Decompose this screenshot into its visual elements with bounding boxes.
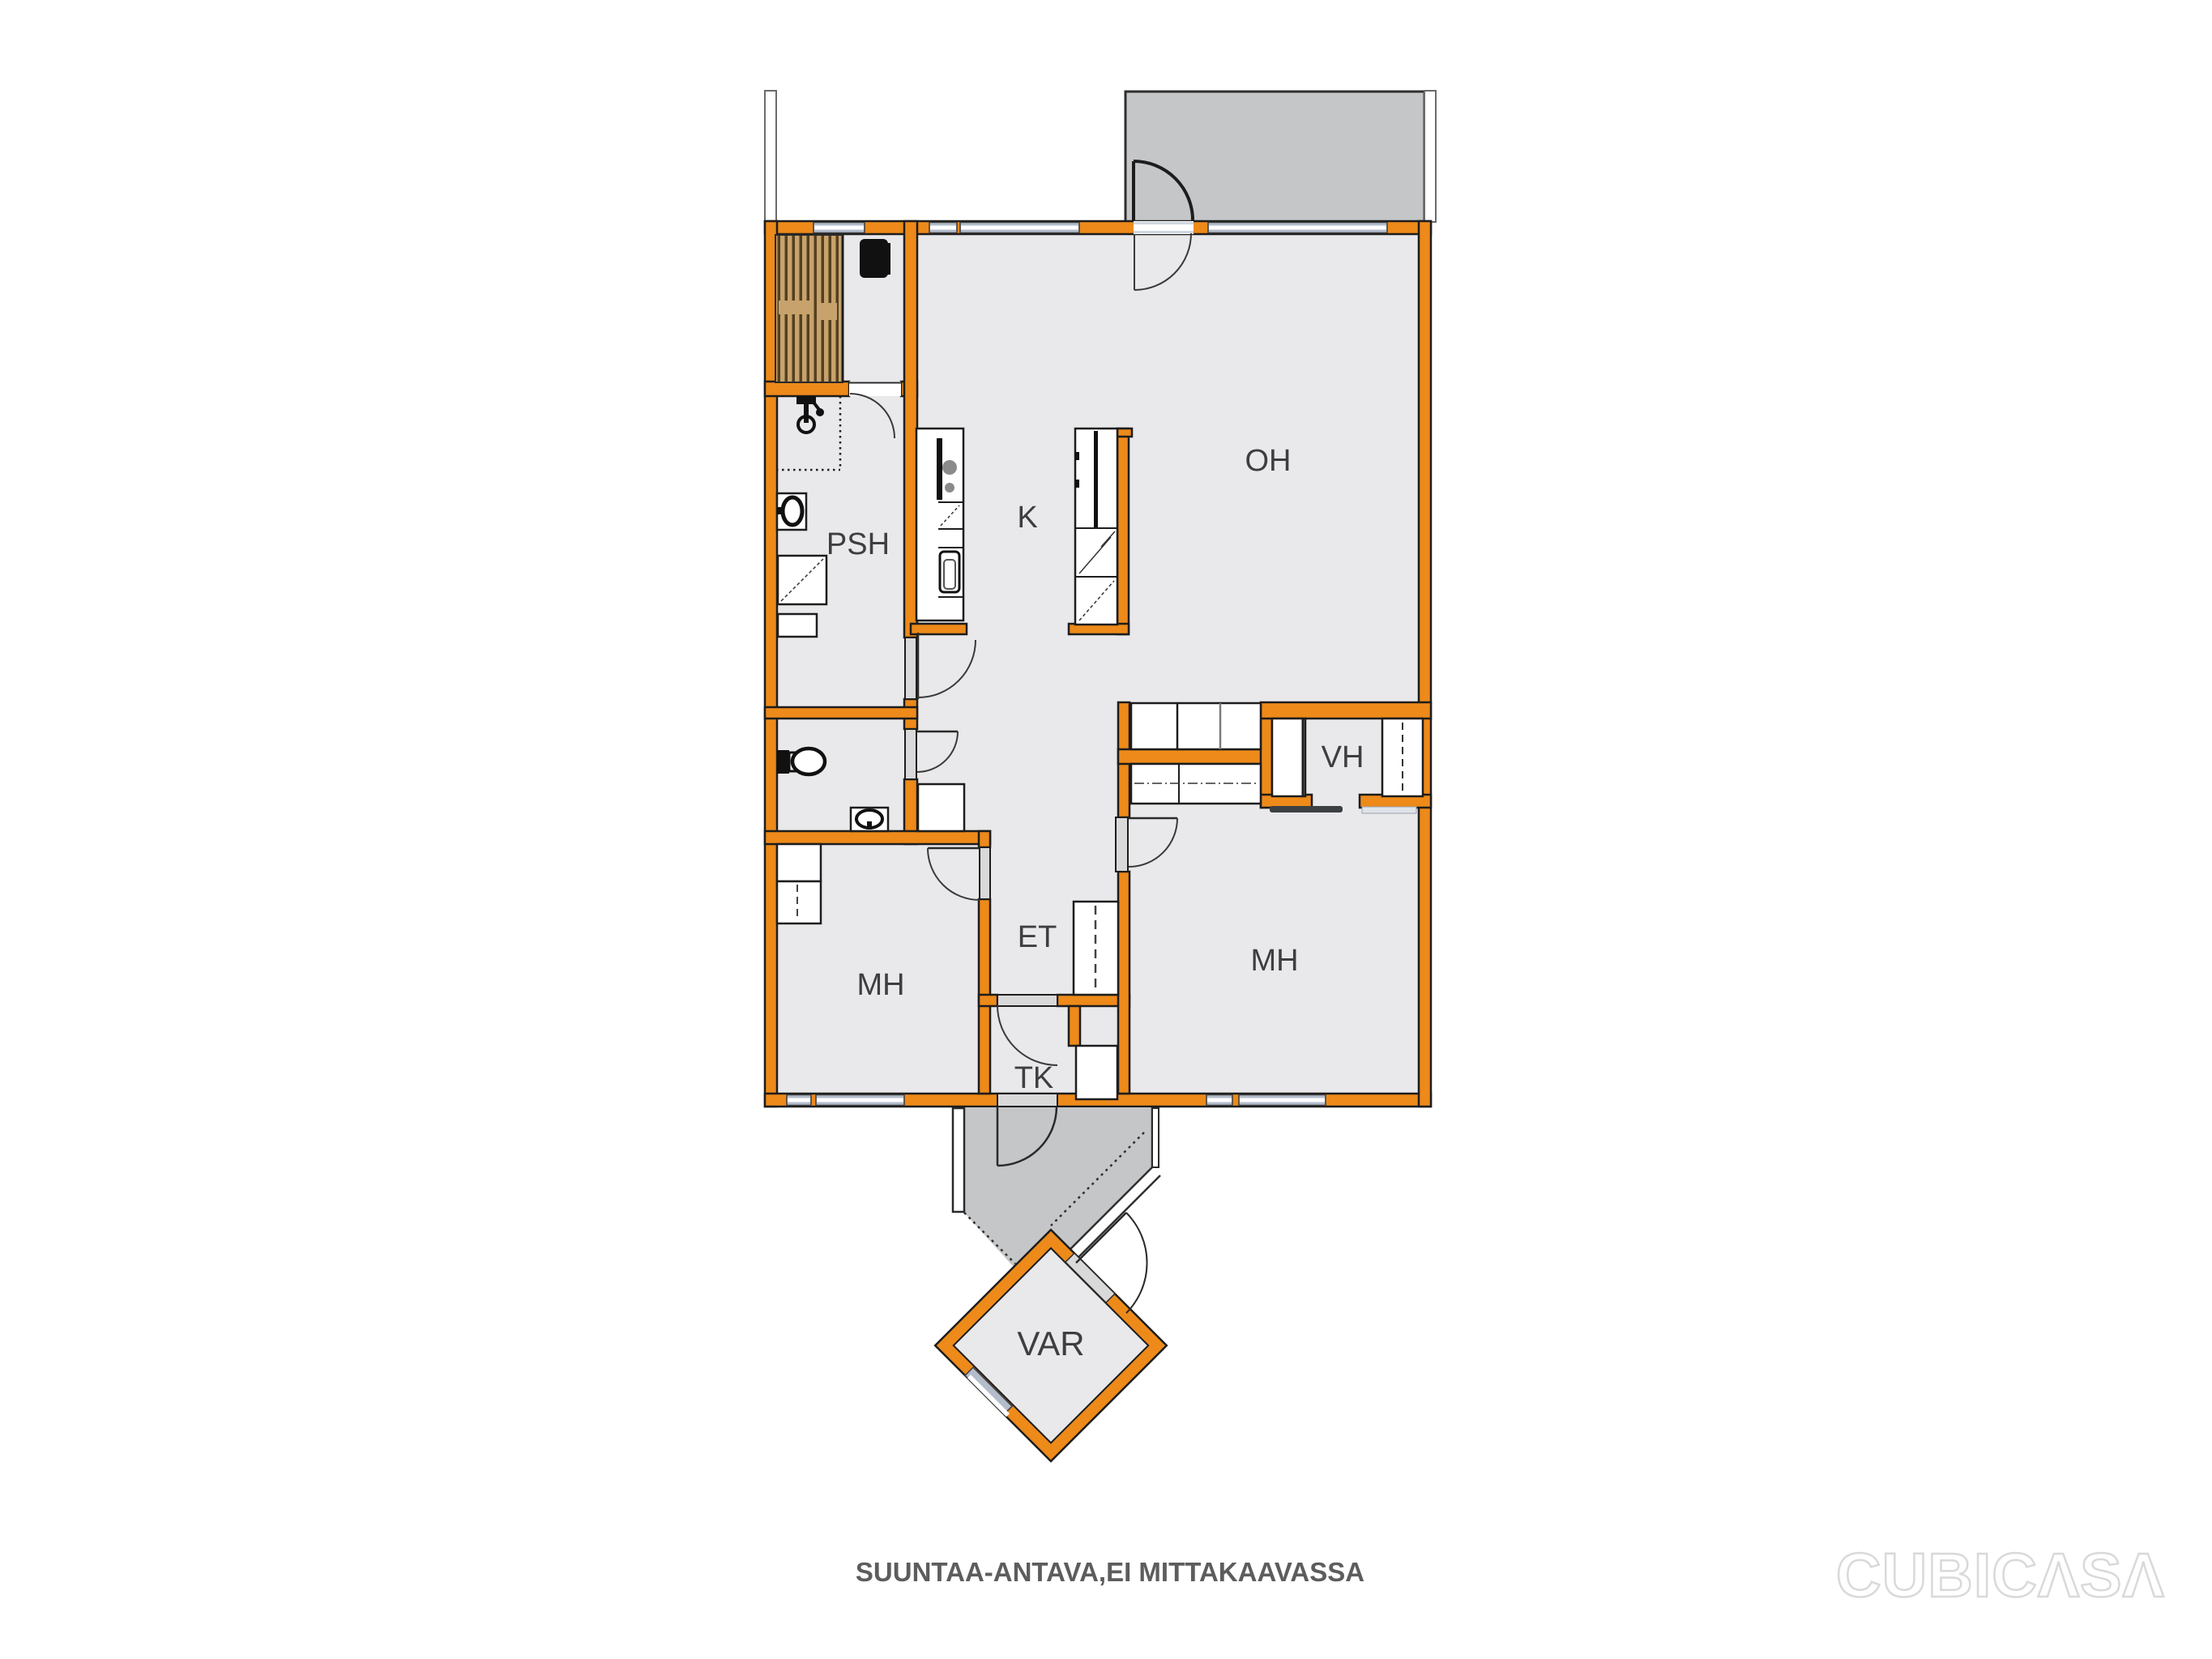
svg-text:TK: TK bbox=[1014, 1061, 1054, 1095]
svg-text:OH: OH bbox=[1245, 444, 1292, 478]
svg-text:SUUNTAA-ANTAVA,EI MITTAKAAVASS: SUUNTAA-ANTAVA,EI MITTAKAAVASSA bbox=[856, 1557, 1364, 1587]
svg-text:K: K bbox=[1017, 501, 1037, 535]
svg-text:MH: MH bbox=[1250, 944, 1298, 978]
svg-text:CUBICΛSΛ: CUBICΛSΛ bbox=[1836, 1541, 2165, 1610]
svg-text:PSH: PSH bbox=[826, 527, 890, 561]
svg-text:ET: ET bbox=[1018, 920, 1057, 954]
svg-text:VAR: VAR bbox=[1017, 1324, 1084, 1363]
svg-text:MH: MH bbox=[856, 968, 904, 1002]
svg-text:VH: VH bbox=[1322, 740, 1364, 774]
